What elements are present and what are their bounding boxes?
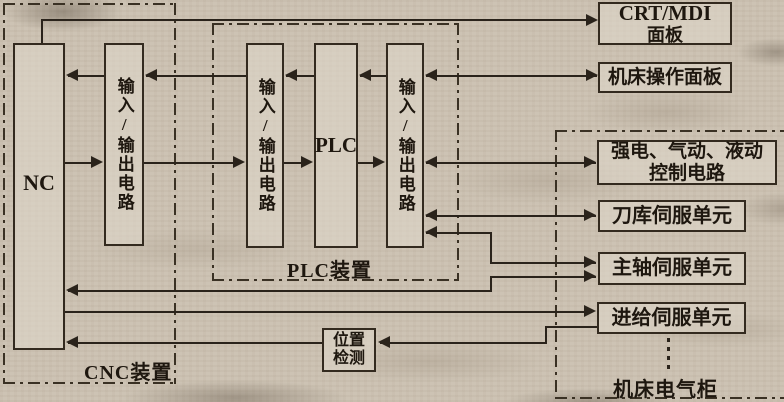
arrowhead-into-io3-from-spindle (425, 226, 437, 238)
cnc-system-diagram: NC 输入/输出电路 输入/输出电路 PLC 输入/输出电路 CRT/MDI 面… (0, 0, 784, 402)
line-nc-crtmdi-riser (41, 20, 43, 44)
line-io3-spindle-h2 (490, 262, 596, 264)
power-circuit-label-line1: 强电、气动、液动 (611, 141, 763, 163)
cabinet-border-top (555, 130, 784, 132)
line-nc-feedservo (65, 311, 586, 313)
plc-unit-label: PLC装置 (287, 254, 372, 283)
arrowhead-into-spindle-upper (584, 256, 596, 268)
io-circuit-box-3: 输入/输出电路 (386, 43, 424, 248)
arrowhead-into-power (584, 156, 596, 168)
arrowhead-into-panel (586, 69, 598, 81)
crt-mdi-label-line2: 面板 (647, 25, 683, 46)
power-circuit-label-line2: 控制电路 (649, 163, 725, 185)
cnc-unit-border-right (174, 3, 176, 384)
line-nc-spindle-h2 (490, 276, 596, 278)
line-io2-io1 (146, 75, 246, 77)
io-circuit-label-2: 输入/输出电路 (255, 78, 275, 213)
io-circuit-box-2: 输入/输出电路 (246, 43, 284, 248)
line-feed-pos-h1 (545, 326, 597, 328)
crt-mdi-panel-box: CRT/MDI 面板 (598, 2, 732, 45)
arrowhead-into-io1 (145, 69, 157, 81)
arrowhead-into-io2-mid (233, 156, 245, 168)
power-circuit-box: 强电、气动、液动 控制电路 (597, 140, 777, 185)
arrowhead-into-nc-top (66, 69, 78, 81)
line-feed-pos-h2 (380, 342, 547, 344)
arrowhead-into-io3-from-power (425, 156, 437, 168)
line-io3-toolservo (426, 215, 596, 217)
arrowhead-into-crtmdi (586, 14, 598, 26)
crt-mdi-label-line1: CRT/MDI (619, 1, 712, 25)
plc-unit-border-left (212, 23, 214, 280)
operation-panel-box: 机床操作面板 (598, 62, 732, 93)
arrowhead-into-io3-mid (373, 156, 385, 168)
dotted-line-feed-cabinet (667, 338, 670, 372)
arrowhead-into-io2 (285, 69, 297, 81)
plc-box: PLC (314, 43, 358, 248)
spindle-servo-label: 主轴伺服单元 (612, 257, 732, 280)
arrowhead-into-io1-mid (91, 156, 103, 168)
line-nc-crtmdi (41, 19, 588, 21)
arrowhead-into-position-detect (378, 336, 390, 348)
cabinet-label: 机床电气柜 (613, 373, 718, 402)
arrowhead-into-feedservo (584, 305, 596, 317)
plc-label: PLC (315, 133, 357, 157)
nc-box: NC (13, 43, 65, 350)
arrowhead-into-io3-from-tool (425, 209, 437, 221)
cnc-unit-border-top (3, 3, 175, 5)
line-io3-spindle-v (490, 232, 492, 264)
io-circuit-label-1: 输入/输出电路 (114, 77, 134, 212)
position-detect-label-line2: 检测 (333, 350, 365, 368)
line-io3-power (426, 162, 596, 164)
position-detect-box: 位置 检测 (322, 328, 376, 372)
feed-servo-box: 进给伺服单元 (597, 302, 746, 334)
line-nc-spindle-h1 (68, 290, 492, 292)
arrowhead-into-io3-top (425, 69, 437, 81)
arrowhead-into-nc-from-spindle (66, 284, 78, 296)
feed-servo-label: 进给伺服单元 (612, 307, 732, 330)
line-nc-spindle-v (490, 276, 492, 292)
line-io1-io2 (144, 162, 236, 164)
tool-servo-label: 刀库伺服单元 (612, 205, 732, 228)
arrowhead-into-toolservo (584, 209, 596, 221)
cnc-unit-label: CNC装置 (84, 356, 172, 385)
position-detect-label-line1: 位置 (333, 332, 365, 350)
line-pos-nc (68, 342, 322, 344)
tool-servo-box: 刀库伺服单元 (598, 200, 746, 232)
operation-panel-label: 机床操作面板 (608, 67, 722, 89)
cabinet-border-left (555, 130, 557, 399)
spindle-servo-box: 主轴伺服单元 (598, 252, 746, 285)
io-circuit-label-3: 输入/输出电路 (395, 78, 415, 213)
arrowhead-into-nc-from-pos (66, 336, 78, 348)
plc-unit-border-top (212, 23, 459, 25)
nc-label: NC (23, 170, 55, 195)
cnc-unit-border-left (3, 3, 5, 383)
arrowhead-into-plc-mid (301, 156, 313, 168)
io-circuit-box-1: 输入/输出电路 (104, 43, 144, 246)
plc-unit-border-right (457, 23, 459, 281)
arrowhead-into-spindle-lower (584, 270, 596, 282)
arrowhead-into-plc (359, 69, 371, 81)
line-panel-io3 (426, 75, 597, 77)
